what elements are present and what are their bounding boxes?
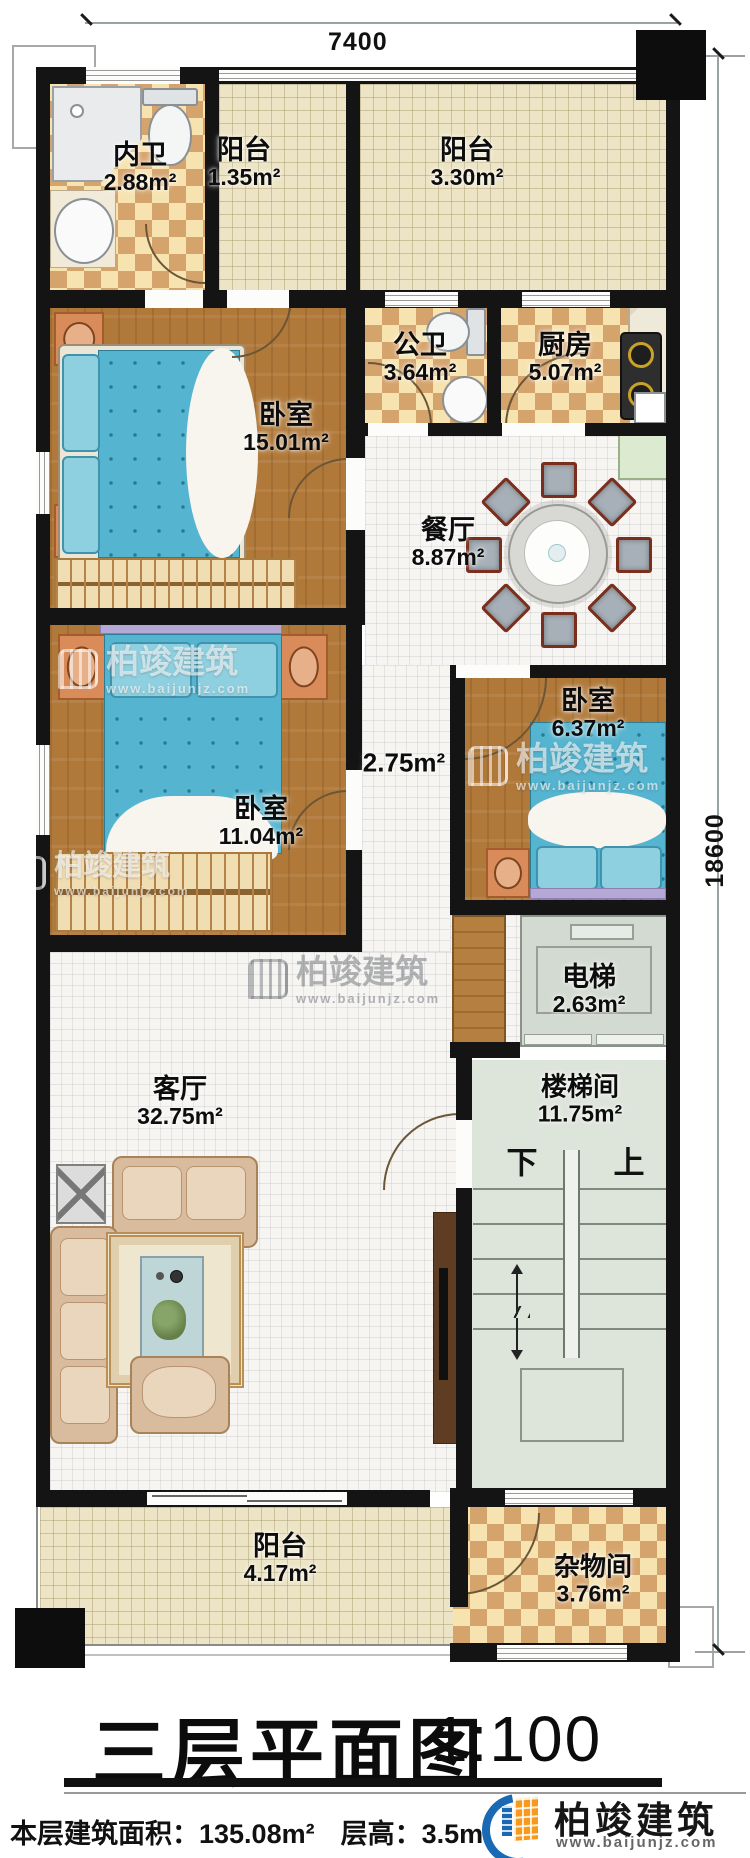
room-label-bedroom-master: 卧室15.01m² xyxy=(243,400,329,456)
window xyxy=(36,745,50,835)
door-opening xyxy=(227,290,289,308)
window xyxy=(36,452,50,514)
sliding-door xyxy=(147,1492,347,1505)
room-area: 8.87m² xyxy=(412,545,485,571)
window xyxy=(505,1490,633,1505)
room-label-elevator: 电梯2.63m² xyxy=(553,962,626,1018)
elevator-door xyxy=(524,1034,592,1045)
room-name: 公卫 xyxy=(384,330,457,360)
door-opening xyxy=(145,290,203,308)
wall xyxy=(487,308,501,423)
room-label-bedroom-3: 卧室6.37m² xyxy=(552,686,625,742)
room-name: 阳台 xyxy=(431,135,504,165)
bathroom-sink xyxy=(54,198,114,264)
stair-arrow-up xyxy=(511,1264,523,1274)
sofa-cushion xyxy=(60,1238,110,1296)
wardrobe xyxy=(54,852,272,932)
nightstand xyxy=(280,634,328,700)
room-label-balcony-bottom: 阳台4.17m² xyxy=(244,1531,317,1587)
stair-rail xyxy=(563,1150,580,1358)
room-name: 阳台 xyxy=(244,1531,317,1561)
dining-chair xyxy=(541,462,577,498)
shower-drain xyxy=(70,104,84,118)
floor-plan: 7400 18600 xyxy=(0,0,750,1858)
room-area: 2.63m² xyxy=(553,992,626,1018)
stove-burner xyxy=(628,342,654,368)
wall xyxy=(36,608,346,625)
room-area: 11.75m² xyxy=(538,1102,622,1128)
wall xyxy=(346,84,360,290)
wall xyxy=(36,935,346,952)
room-label-living: 客厅32.75m² xyxy=(137,1074,223,1130)
room-label-storage: 杂物间3.76m² xyxy=(554,1553,632,1608)
sofa-cushion xyxy=(122,1166,182,1220)
footer-height-label: 层高： xyxy=(341,1819,422,1849)
nightstand-knob xyxy=(289,646,319,687)
footer-area-label: 本层建筑面积： xyxy=(10,1819,199,1849)
window xyxy=(522,292,610,307)
wall xyxy=(450,1507,468,1607)
room-area: 3.76m² xyxy=(554,1582,632,1608)
lazy-susan xyxy=(548,544,566,562)
door-opening xyxy=(368,423,428,436)
room-name: 内卫 xyxy=(104,140,177,170)
room-name: 阳台 xyxy=(208,135,281,165)
dimension-top-value: 7400 xyxy=(328,28,388,57)
room-label-inner-bath: 内卫2.88m² xyxy=(104,140,177,196)
plan-scale: 1:100 xyxy=(432,1702,602,1776)
sliding-door-leaf xyxy=(152,1495,247,1497)
room-label-balcony-small: 阳台1.35m² xyxy=(208,135,281,191)
bed-pillow xyxy=(536,846,598,890)
room-label-stairwell: 楼梯间11.75m² xyxy=(538,1073,622,1128)
room-label-public-bath: 公卫3.64m² xyxy=(384,330,457,386)
brand-logo-building-blue-icon xyxy=(502,1806,512,1836)
room-name: 卧室 xyxy=(243,400,329,430)
room-label-dining: 餐厅8.87m² xyxy=(412,515,485,571)
room-area: 6.37m² xyxy=(552,716,625,742)
window-band xyxy=(219,70,660,81)
sofa-cushion xyxy=(142,1366,216,1418)
end-table xyxy=(56,1164,106,1224)
room-name: 客厅 xyxy=(137,1074,223,1104)
room-name: 厨房 xyxy=(529,330,602,360)
room-area: 4.17m² xyxy=(244,1561,317,1587)
footer-height-value: 3.5m xyxy=(422,1819,484,1849)
brand-url: www.baijunjz.com xyxy=(556,1834,717,1851)
dimension-right-value: 18600 xyxy=(701,813,730,888)
wall xyxy=(456,1045,472,1120)
nightstand-knob xyxy=(67,646,97,687)
room-name: 卧室 xyxy=(219,794,303,824)
room-area: 2.75m² xyxy=(363,748,445,777)
door-opening xyxy=(456,1120,472,1188)
bed-headboard xyxy=(530,888,666,899)
room-area: 32.75m² xyxy=(137,1104,223,1130)
wall xyxy=(450,678,465,915)
title-underline-thick xyxy=(64,1778,662,1787)
room-label-bedroom-2: 卧室11.04m² xyxy=(219,794,303,850)
door-opening xyxy=(346,458,365,530)
room-area: 3.64m² xyxy=(384,360,457,386)
room-floor-hallway xyxy=(362,665,450,955)
stairs-up-label: 上 xyxy=(614,1138,645,1183)
elevator-panel xyxy=(570,924,634,940)
room-area: 1.35m² xyxy=(208,165,281,191)
table-decor xyxy=(156,1272,164,1280)
door-opening xyxy=(346,770,362,850)
room-area: 5.07m² xyxy=(529,360,602,386)
door-opening xyxy=(456,665,530,678)
dining-chair xyxy=(541,612,577,648)
table-decor xyxy=(170,1270,183,1283)
bed-pillow xyxy=(196,642,278,698)
room-area: 15.01m² xyxy=(243,430,329,456)
table-flowers xyxy=(152,1300,186,1340)
dimension-line-top xyxy=(85,22,677,24)
footer-stats: 本层建筑面积：135.08m²层高：3.5m xyxy=(10,1812,483,1851)
dining-chair xyxy=(616,537,652,573)
stairs-down-label: 下 xyxy=(507,1138,538,1183)
room-name: 电梯 xyxy=(553,962,626,992)
tv xyxy=(439,1268,448,1380)
room-label-balcony-top: 阳台3.30m² xyxy=(431,135,504,191)
bed-pillow xyxy=(62,354,100,452)
nightstand xyxy=(486,848,530,898)
room-name: 餐厅 xyxy=(412,515,485,545)
wardrobe xyxy=(54,558,298,610)
bed-sheet-fold xyxy=(528,792,666,848)
footer-area-value: 135.08m² xyxy=(199,1819,315,1849)
column xyxy=(15,1608,85,1668)
room-area: 2.88m² xyxy=(104,170,177,196)
sideboard xyxy=(618,430,668,480)
bed-pillow xyxy=(62,456,100,554)
nightstand xyxy=(58,634,106,700)
sofa-cushion xyxy=(60,1302,110,1360)
room-area: 3.30m² xyxy=(431,165,504,191)
stair-landing-outline xyxy=(520,1368,624,1442)
window xyxy=(86,67,180,84)
armchair xyxy=(130,1356,230,1434)
window xyxy=(497,1645,627,1660)
brand-logo-building-orange-icon xyxy=(514,1797,538,1841)
room-name: 卧室 xyxy=(552,686,625,716)
hall-cabinet xyxy=(452,915,506,1047)
kitchen-appliance xyxy=(634,392,666,424)
sliding-door-leaf xyxy=(247,1500,342,1502)
room-floor-balcony-top xyxy=(360,84,666,290)
stair-arrow-down xyxy=(511,1350,523,1360)
room-label-kitchen: 厨房5.07m² xyxy=(529,330,602,386)
brand-logo: 柏竣建筑 www.baijunjz.com xyxy=(482,1790,748,1858)
room-area: 11.04m² xyxy=(219,824,303,850)
elevator-door xyxy=(596,1034,664,1045)
room-label-hallway: 2.75m² xyxy=(363,748,445,777)
sofa-cushion xyxy=(186,1166,246,1220)
bed-pillow xyxy=(600,846,662,890)
balcony-railing xyxy=(38,1644,455,1656)
room-name: 杂物间 xyxy=(554,1553,632,1582)
window xyxy=(385,292,458,307)
bed-pillow xyxy=(110,642,192,698)
column xyxy=(636,30,706,100)
nightstand-knob xyxy=(494,857,522,889)
room-name: 楼梯间 xyxy=(538,1073,622,1102)
sofa-cushion xyxy=(60,1366,110,1424)
wall xyxy=(456,1188,472,1490)
door-opening xyxy=(502,423,585,436)
wall xyxy=(450,900,680,915)
stair-break-mark xyxy=(506,1306,530,1318)
